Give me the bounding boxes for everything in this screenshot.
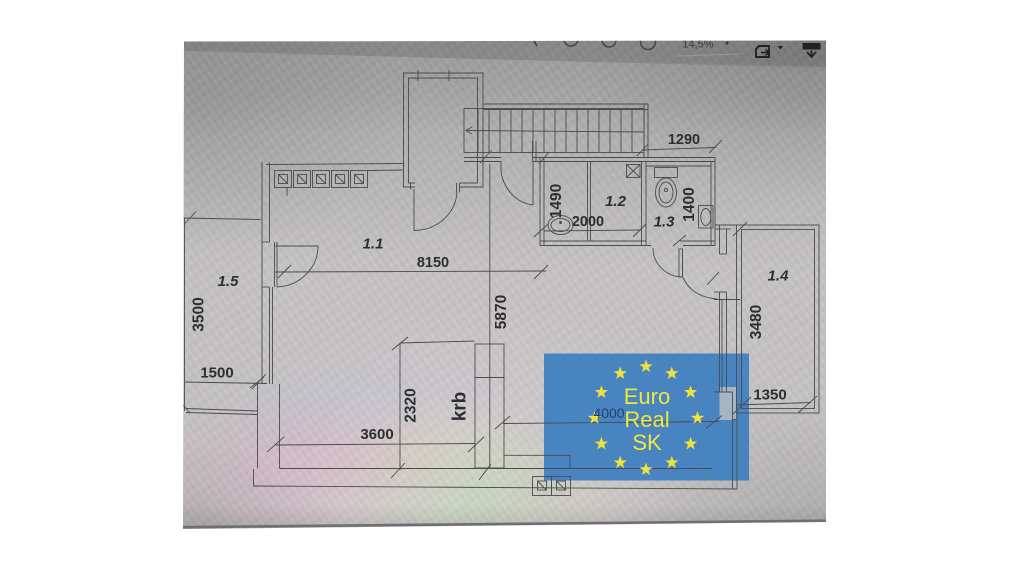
- svg-text:2000: 2000: [572, 214, 604, 230]
- svg-text:SK: SK: [632, 430, 662, 455]
- svg-text:1.5: 1.5: [218, 273, 240, 290]
- svg-text:1290: 1290: [668, 132, 700, 148]
- svg-text:1400: 1400: [681, 187, 698, 221]
- svg-text:1.2: 1.2: [605, 193, 627, 210]
- svg-text:5870: 5870: [493, 295, 510, 329]
- svg-text:8150: 8150: [417, 255, 449, 271]
- svg-text:3600: 3600: [360, 426, 393, 443]
- svg-text:krb: krb: [450, 392, 471, 422]
- svg-text:3480: 3480: [748, 305, 765, 339]
- svg-text:1.3: 1.3: [654, 214, 676, 231]
- svg-text:14,5%: 14,5%: [682, 39, 713, 51]
- svg-text:4000: 4000: [593, 405, 624, 421]
- svg-text:3500: 3500: [191, 297, 208, 331]
- svg-text:1350: 1350: [753, 387, 786, 404]
- svg-text:1500: 1500: [200, 365, 233, 382]
- svg-text:1.4: 1.4: [768, 268, 790, 285]
- svg-text:Euro: Euro: [624, 384, 670, 409]
- svg-text:2320: 2320: [403, 388, 420, 422]
- svg-text:1.1: 1.1: [363, 236, 384, 253]
- svg-text:1490: 1490: [548, 184, 565, 218]
- svg-text:Real: Real: [624, 407, 669, 432]
